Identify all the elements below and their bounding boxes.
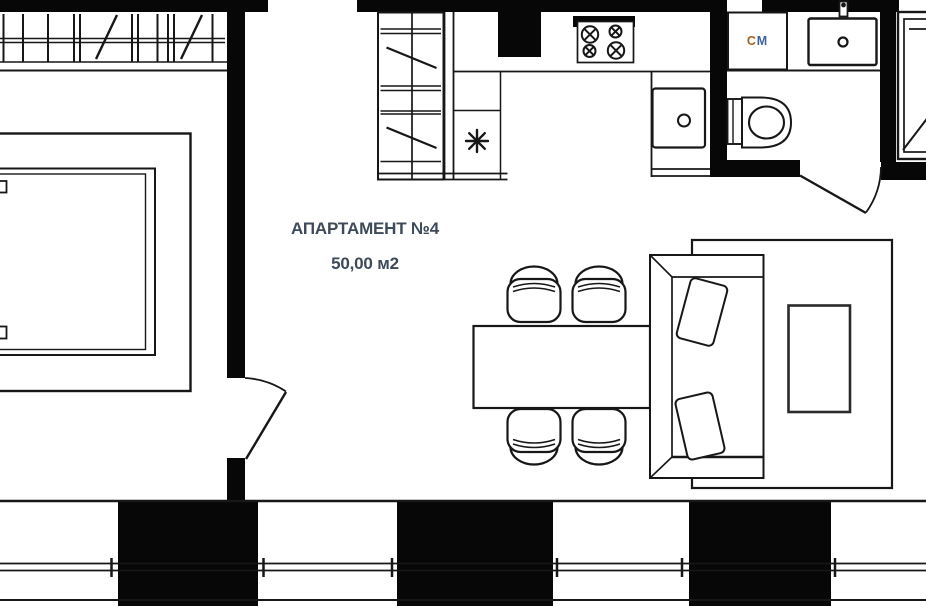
window-band-icon: [0, 14, 227, 71]
shower-tray-icon: [898, 12, 926, 159]
column-bottom-2: [397, 502, 553, 606]
column-bottom-1: [118, 502, 258, 606]
wall-top-right: [762, 0, 899, 12]
chair-icon: [573, 409, 626, 465]
wall-bedroom: [227, 0, 245, 378]
column-bottom-3: [689, 502, 831, 606]
column-kitchen: [498, 0, 541, 57]
chair-icon: [508, 267, 561, 323]
apartment-area: 50,00 м2: [276, 254, 454, 274]
apartment-title: АПАРТАМЕНТ №4: [276, 219, 454, 239]
bed-pillow-left: [0, 181, 7, 193]
coffee-table-icon: [789, 306, 851, 413]
faucet-icon: [840, 2, 848, 17]
door-swing-icon: [245, 378, 286, 459]
chair-icon: [508, 409, 561, 465]
floor-plan: АПАРТАМЕНТ №4 50,00 м2 СМ: [0, 0, 926, 606]
wall-below-shower: [881, 162, 926, 180]
bathroom-door-swing-icon: [800, 167, 881, 213]
bed-icon: [0, 134, 191, 392]
dining-table-icon: [474, 326, 651, 408]
chair-icon: [573, 267, 626, 323]
bed-pillow-right: [0, 327, 7, 339]
stove-4-burners-icon: [573, 16, 635, 63]
wall-bathroom-bottom: [710, 160, 800, 177]
washbasin-icon: [809, 19, 877, 66]
washing-machine-label: СМ: [741, 34, 774, 48]
wardrobe-icon: [378, 12, 454, 180]
sofa-icon: [650, 255, 764, 478]
wall-bathroom-right: [880, 12, 896, 162]
kitchen-sink-icon: [652, 72, 711, 178]
wm-letter-c: С: [747, 34, 757, 48]
wm-letter-m: М: [757, 34, 768, 48]
floor-plan-drawing: [0, 0, 926, 606]
wall-bathroom-left: [710, 0, 727, 177]
refrigerator-snowflake-icon: [466, 130, 488, 152]
toilet-icon: [728, 98, 792, 148]
wall-bedroom-stub: [227, 458, 245, 502]
wall-top-middle: [357, 0, 727, 12]
